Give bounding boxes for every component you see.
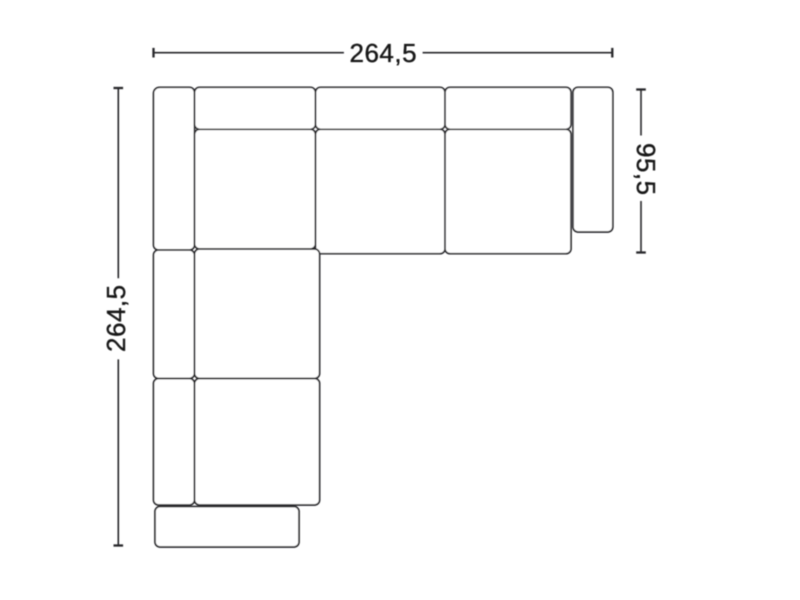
svg-text:264,5: 264,5 [350, 38, 418, 68]
svg-text:264,5: 264,5 [101, 284, 131, 352]
svg-text:95,5: 95,5 [631, 143, 661, 196]
